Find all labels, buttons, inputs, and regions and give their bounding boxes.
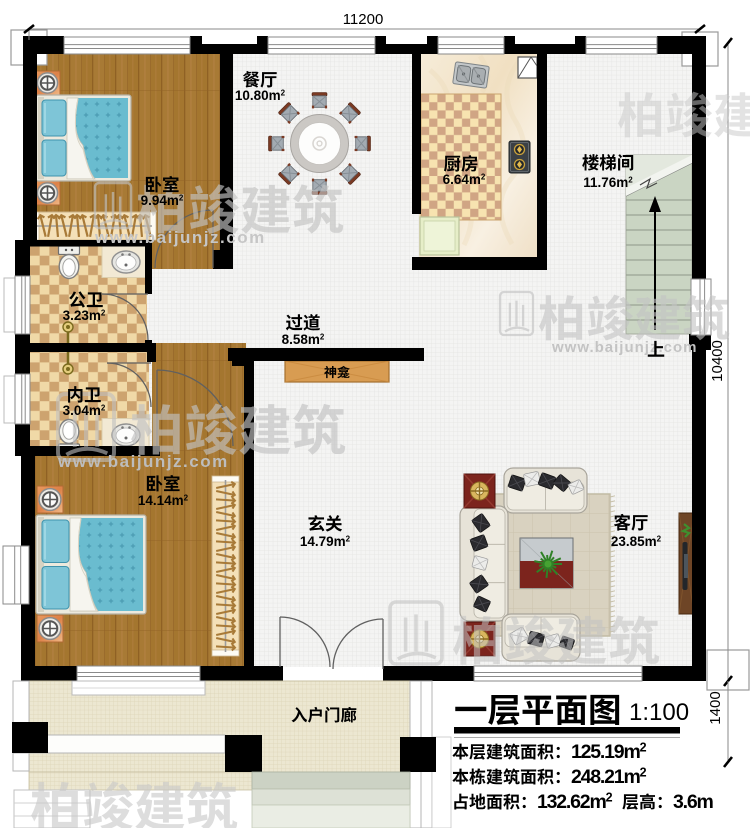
- svg-text:10400: 10400: [709, 340, 726, 382]
- svg-text:23.85m2: 23.85m2: [611, 534, 662, 549]
- svg-text:3.23m2: 3.23m2: [63, 308, 106, 323]
- svg-text:125.19m2: 125.19m2: [571, 741, 647, 764]
- svg-text:6.64m2: 6.64m2: [443, 172, 486, 187]
- svg-text:11.76m2: 11.76m2: [583, 175, 633, 190]
- svg-text:132.62m2: 132.62m2: [537, 791, 613, 814]
- svg-text:8.58m2: 8.58m2: [282, 332, 325, 347]
- svg-text:www.baijunjz.com: www.baijunjz.com: [551, 339, 697, 356]
- svg-text:9.94m2: 9.94m2: [141, 193, 184, 208]
- svg-text:14.79m2: 14.79m2: [300, 534, 351, 549]
- svg-text:11200: 11200: [343, 11, 384, 28]
- svg-text:www.baijunjz.com: www.baijunjz.com: [57, 452, 229, 471]
- svg-text:14.14m2: 14.14m2: [138, 493, 189, 508]
- svg-text:1:100: 1:100: [629, 699, 689, 726]
- svg-text:3.04m2: 3.04m2: [63, 403, 106, 418]
- svg-text:10.80m2: 10.80m2: [235, 88, 286, 103]
- svg-text:3.6m: 3.6m: [673, 791, 714, 813]
- svg-text:1400: 1400: [707, 691, 724, 724]
- svg-text:www.baijunjz.com: www.baijunjz.com: [94, 228, 266, 247]
- svg-text:248.21m2: 248.21m2: [571, 766, 647, 789]
